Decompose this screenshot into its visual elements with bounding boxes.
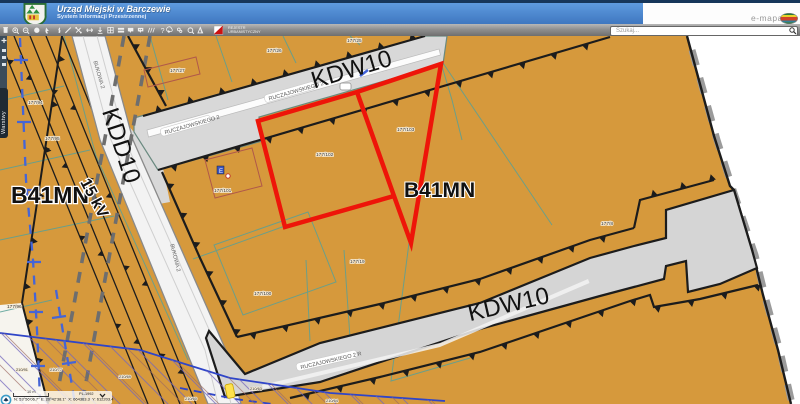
svg-text:177/102: 177/102 bbox=[316, 152, 334, 158]
svg-text:177/95: 177/95 bbox=[45, 136, 60, 142]
svg-text:210/63: 210/63 bbox=[250, 386, 262, 391]
svg-text:B41MN: B41MN bbox=[11, 182, 89, 208]
svg-text:177/26: 177/26 bbox=[267, 48, 282, 54]
svg-text:177/103: 177/103 bbox=[397, 127, 415, 133]
svg-text:210/77: 210/77 bbox=[50, 367, 62, 372]
svg-text:177/96: 177/96 bbox=[7, 304, 22, 310]
svg-text:210/60: 210/60 bbox=[185, 396, 198, 401]
svg-text:210/69: 210/69 bbox=[119, 374, 131, 379]
svg-text:177/100: 177/100 bbox=[254, 291, 272, 297]
svg-text:177/8: 177/8 bbox=[601, 221, 613, 227]
svg-text:177/101: 177/101 bbox=[214, 188, 232, 194]
svg-text:177/19: 177/19 bbox=[350, 259, 365, 265]
svg-text:177/27: 177/27 bbox=[170, 68, 185, 74]
svg-text:E: E bbox=[219, 169, 223, 175]
svg-text:177/94: 177/94 bbox=[28, 100, 43, 106]
svg-text:177/25: 177/25 bbox=[347, 38, 362, 44]
svg-text:?: ? bbox=[161, 28, 165, 35]
svg-text:210/64: 210/64 bbox=[326, 398, 339, 403]
svg-text:210/91: 210/91 bbox=[16, 367, 28, 372]
svg-text:B41MN: B41MN bbox=[404, 179, 475, 202]
